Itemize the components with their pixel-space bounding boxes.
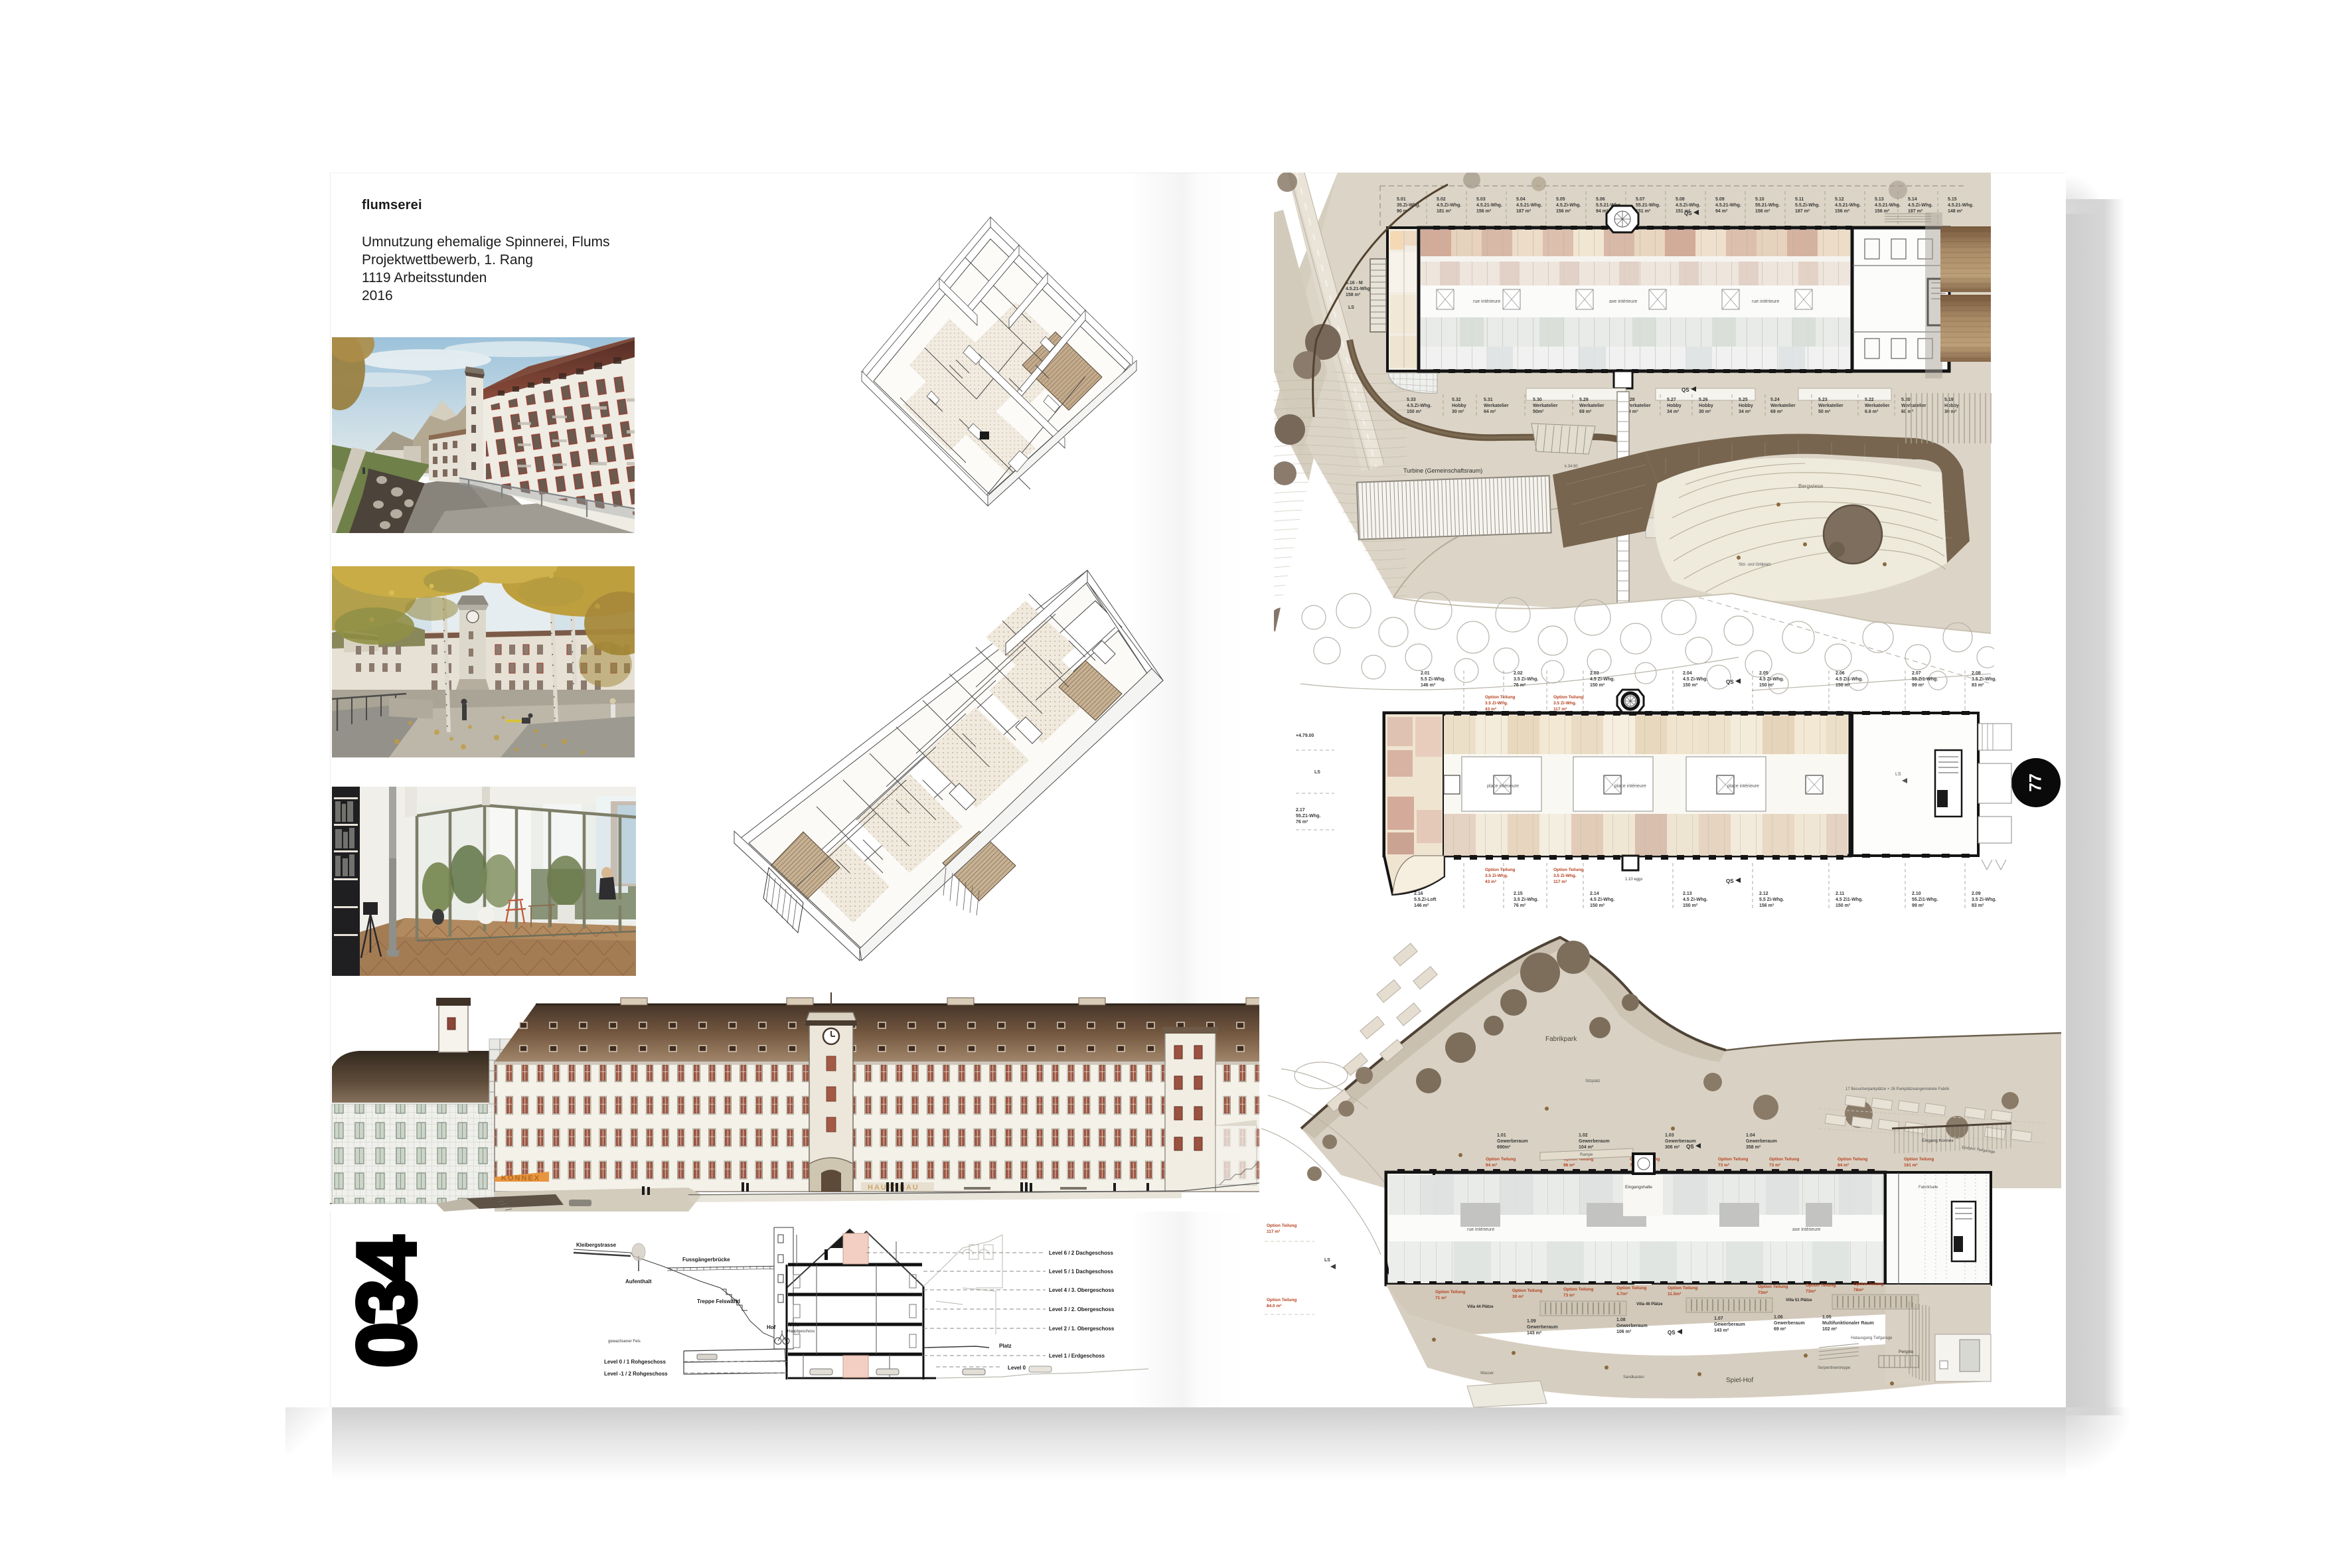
svg-text:Treppe Felswand: Treppe Felswand bbox=[697, 1298, 740, 1304]
svg-text:358 m²: 358 m² bbox=[1746, 1145, 1761, 1150]
svg-text:1.06: 1.06 bbox=[1774, 1315, 1783, 1320]
svg-text:Fabrikhalle: Fabrikhalle bbox=[1919, 1186, 1938, 1190]
svg-text:rue intérieure: rue intérieure bbox=[1752, 299, 1779, 304]
svg-text:1.05: 1.05 bbox=[1822, 1315, 1832, 1320]
svg-text:Option Teilung: Option Teilung bbox=[1769, 1157, 1799, 1162]
svg-text:71 m²: 71 m² bbox=[1435, 1296, 1447, 1300]
svg-text:5.25: 5.25 bbox=[1739, 398, 1748, 402]
svg-text:Option Teilung: Option Teilung bbox=[1485, 868, 1515, 872]
svg-text:78m²: 78m² bbox=[1853, 1288, 1864, 1293]
svg-text:5.16 - M: 5.16 - M bbox=[1346, 281, 1363, 285]
svg-text:69 m²: 69 m² bbox=[1579, 410, 1592, 414]
svg-text:73 m²: 73 m² bbox=[1563, 1293, 1575, 1298]
svg-text:Turbine (Gemeinschaftsraum): Turbine (Gemeinschaftsraum) bbox=[1403, 467, 1482, 474]
svg-text:156 m²: 156 m² bbox=[1835, 209, 1850, 214]
svg-text:6.6 m²: 6.6 m² bbox=[1865, 410, 1879, 414]
svg-text:Villa 46 Plätze: Villa 46 Plätze bbox=[1636, 1302, 1663, 1306]
svg-text:Hof: Hof bbox=[767, 1324, 776, 1330]
svg-text:4.5 Zi-Whg.: 4.5 Zi-Whg. bbox=[1683, 677, 1707, 682]
svg-text:5.5.Zi-Whg.: 5.5.Zi-Whg. bbox=[1795, 203, 1820, 208]
svg-text:99 m²: 99 m² bbox=[1912, 683, 1924, 688]
svg-text:156 m²: 156 m² bbox=[1759, 903, 1774, 908]
svg-text:Werkatelier: Werkatelier bbox=[1901, 404, 1926, 408]
svg-text:Sitz- und Grillplatz: Sitz- und Grillplatz bbox=[1739, 563, 1771, 567]
svg-text:QS: QS bbox=[1668, 1330, 1676, 1336]
svg-text:Level 5 / 1 Dachgeschoss: Level 5 / 1 Dachgeschoss bbox=[1049, 1269, 1113, 1275]
svg-text:2.08: 2.08 bbox=[1972, 671, 1981, 676]
svg-text:84 m²: 84 m² bbox=[1838, 1163, 1849, 1168]
svg-text:43 m²: 43 m² bbox=[1485, 707, 1497, 712]
svg-text:Gewerberaum: Gewerberaum bbox=[1616, 1324, 1648, 1328]
svg-text:5.11: 5.11 bbox=[1795, 197, 1804, 202]
svg-text:Gewerberaum: Gewerberaum bbox=[1527, 1325, 1558, 1330]
svg-text:k.34.90: k.34.90 bbox=[1565, 465, 1578, 469]
svg-text:150 m²: 150 m² bbox=[1759, 683, 1774, 688]
svg-text:143 m²: 143 m² bbox=[1714, 1328, 1729, 1333]
svg-text:Option Teilung: Option Teilung bbox=[1904, 1157, 1934, 1162]
svg-text:2.15: 2.15 bbox=[1514, 892, 1523, 896]
svg-text:5.5 Zi-Whg.: 5.5 Zi-Whg. bbox=[1759, 898, 1784, 902]
svg-text:5.12: 5.12 bbox=[1835, 197, 1844, 202]
svg-text:5.26: 5.26 bbox=[1699, 398, 1708, 402]
svg-text:150 m²: 150 m² bbox=[1590, 903, 1605, 908]
svg-text:QS: QS bbox=[1726, 878, 1734, 884]
svg-text:30 m²: 30 m² bbox=[1944, 410, 1957, 414]
svg-text:187 m²: 187 m² bbox=[1516, 209, 1531, 214]
svg-text:4.5 Zi1-Whg.: 4.5 Zi1-Whg. bbox=[1836, 677, 1863, 682]
svg-text:4.5.21-Whg.: 4.5.21-Whg. bbox=[1476, 203, 1502, 208]
svg-text:5.07: 5.07 bbox=[1636, 197, 1645, 202]
svg-text:3.5 Zi-Whg.: 3.5 Zi-Whg. bbox=[1514, 898, 1538, 902]
svg-text:17 Besucherparkplätze + 26 Par: 17 Besucherparkplätze + 26 Parkplätzeang… bbox=[1845, 1087, 1950, 1091]
svg-text:5.13: 5.13 bbox=[1875, 197, 1884, 202]
svg-text:Serpentinentreppe: Serpentinentreppe bbox=[1818, 1366, 1851, 1370]
svg-text:11.5m²: 11.5m² bbox=[1668, 1292, 1682, 1296]
svg-text:1.08: 1.08 bbox=[1616, 1318, 1626, 1322]
svg-text:Werkatelier: Werkatelier bbox=[1579, 404, 1605, 408]
svg-text:187 m²: 187 m² bbox=[1795, 209, 1810, 214]
svg-text:3.5 Zi-Whg.: 3.5 Zi-Whg. bbox=[1972, 677, 1996, 682]
svg-text:LS: LS bbox=[1324, 1258, 1330, 1263]
svg-text:Option Teilung: Option Teilung bbox=[1553, 695, 1583, 700]
svg-text:34 m²: 34 m² bbox=[1667, 410, 1680, 414]
svg-text:5.27: 5.27 bbox=[1667, 398, 1676, 402]
svg-text:150 m²: 150 m² bbox=[1407, 410, 1422, 414]
svg-text:2.12: 2.12 bbox=[1759, 892, 1768, 896]
svg-text:Option Teilung: Option Teilung bbox=[1267, 1298, 1296, 1302]
svg-text:axe intérieure: axe intérieure bbox=[1792, 1227, 1821, 1232]
svg-text:2.01: 2.01 bbox=[1421, 671, 1430, 676]
svg-text:5.06: 5.06 bbox=[1596, 197, 1605, 202]
svg-text:1.02: 1.02 bbox=[1579, 1133, 1588, 1138]
svg-text:place intérieure: place intérieure bbox=[1727, 784, 1759, 789]
svg-text:69 m²: 69 m² bbox=[1774, 1327, 1786, 1332]
svg-text:30 m²: 30 m² bbox=[1452, 410, 1464, 414]
svg-text:4.5 Zi-Whg.: 4.5 Zi-Whg. bbox=[1590, 898, 1614, 902]
svg-text:5.02: 5.02 bbox=[1437, 197, 1446, 202]
svg-text:5.32: 5.32 bbox=[1452, 398, 1461, 402]
svg-text:43 m²: 43 m² bbox=[1485, 880, 1497, 884]
svg-text:5.5.Zi-Loft: 5.5.Zi-Loft bbox=[1414, 898, 1437, 902]
svg-text:3.5 Zi-Whg.: 3.5 Zi-Whg. bbox=[1485, 874, 1508, 878]
svg-text:4.5 Zi-Whg.: 4.5 Zi-Whg. bbox=[1759, 677, 1784, 682]
svg-text:117 m²: 117 m² bbox=[1553, 880, 1567, 884]
svg-text:30 m²: 30 m² bbox=[1699, 410, 1711, 414]
svg-text:55.21-Whg.: 55.21-Whg. bbox=[1755, 203, 1780, 208]
svg-text:Rampe: Rampe bbox=[1580, 1153, 1593, 1157]
svg-text:Aufenthalt: Aufenthalt bbox=[625, 1279, 652, 1285]
svg-text:94 m²: 94 m² bbox=[1715, 209, 1728, 214]
svg-text:5.09: 5.09 bbox=[1715, 197, 1725, 202]
svg-text:84.0 m²: 84.0 m² bbox=[1267, 1304, 1282, 1308]
svg-text:156 m²: 156 m² bbox=[1875, 209, 1890, 214]
svg-text:5.05: 5.05 bbox=[1556, 197, 1565, 202]
svg-text:Option Teilung: Option Teilung bbox=[1563, 1287, 1593, 1292]
svg-text:2.13: 2.13 bbox=[1683, 892, 1692, 896]
svg-text:Option Teilung: Option Teilung bbox=[1267, 1223, 1296, 1228]
svg-text:83 m²: 83 m² bbox=[1972, 903, 1984, 908]
svg-text:Eingangshalle: Eingangshalle bbox=[1625, 1185, 1652, 1190]
svg-text:2.11: 2.11 bbox=[1836, 892, 1844, 896]
svg-text:69 m²: 69 m² bbox=[1770, 410, 1783, 414]
svg-text:690m²: 690m² bbox=[1497, 1145, 1511, 1150]
svg-text:150 m²: 150 m² bbox=[1683, 903, 1698, 908]
svg-text:55.Zi1-Whg.: 55.Zi1-Whg. bbox=[1912, 677, 1938, 682]
svg-text:60 m²: 60 m² bbox=[1901, 410, 1914, 414]
svg-text:4.5.Zi-Whg.: 4.5.Zi-Whg. bbox=[1437, 203, 1461, 208]
svg-text:Sandkasten: Sandkasten bbox=[1623, 1375, 1644, 1379]
svg-text:5.33: 5.33 bbox=[1407, 398, 1416, 402]
svg-text:4.5.21-Whg.: 4.5.21-Whg. bbox=[1875, 203, 1901, 208]
svg-text:Level 2 / 1. Obergeschoss: Level 2 / 1. Obergeschoss bbox=[1049, 1326, 1115, 1332]
svg-text:Gewerberaum: Gewerberaum bbox=[1497, 1139, 1528, 1144]
svg-text:104 m²: 104 m² bbox=[1579, 1145, 1594, 1150]
svg-text:102 m²: 102 m² bbox=[1822, 1327, 1838, 1332]
svg-text:1.03: 1.03 bbox=[1665, 1133, 1674, 1138]
svg-text:Werkatelier: Werkatelier bbox=[1533, 404, 1558, 408]
svg-text:4.5.Zi-Whg.: 4.5.Zi-Whg. bbox=[1908, 203, 1932, 208]
svg-text:83 m²: 83 m² bbox=[1972, 683, 1984, 688]
svg-text:73m²: 73m² bbox=[1758, 1291, 1768, 1295]
svg-text:Kleibergstrasse: Kleibergstrasse bbox=[576, 1242, 617, 1248]
svg-text:+4.79.00: +4.79.00 bbox=[1296, 734, 1314, 738]
svg-text:76 m²: 76 m² bbox=[1296, 820, 1308, 824]
svg-text:34 m²: 34 m² bbox=[1739, 410, 1751, 414]
svg-text:64 m²: 64 m² bbox=[1484, 410, 1496, 414]
svg-text:150 m²: 150 m² bbox=[1683, 683, 1698, 688]
svg-text:150 m²: 150 m² bbox=[1836, 903, 1851, 908]
svg-text:3.5 Zi-Whg.: 3.5 Zi-Whg. bbox=[1972, 898, 1996, 902]
svg-text:Spiel-Hof: Spiel-Hof bbox=[1726, 1377, 1753, 1384]
svg-text:4.5 Zi1-Whg.: 4.5 Zi1-Whg. bbox=[1836, 898, 1863, 902]
svg-text:5.5 Zi-Whg.: 5.5 Zi-Whg. bbox=[1421, 677, 1445, 682]
svg-text:Gewerberaum: Gewerberaum bbox=[1665, 1139, 1696, 1144]
svg-text:3.5 Zi-Whg.: 3.5 Zi-Whg. bbox=[1485, 701, 1508, 706]
svg-text:3.5 Zi-Whg.: 3.5 Zi-Whg. bbox=[1553, 874, 1577, 878]
svg-text:Option Teilung: Option Teilung bbox=[1616, 1286, 1646, 1291]
svg-text:73m²: 73m² bbox=[1806, 1289, 1816, 1294]
svg-text:99 m²: 99 m² bbox=[1912, 903, 1924, 908]
svg-text:2.04: 2.04 bbox=[1683, 671, 1692, 676]
svg-text:76 m²: 76 m² bbox=[1514, 903, 1526, 908]
svg-text:3.5 Zi-Whg.: 3.5 Zi-Whg. bbox=[1514, 677, 1538, 682]
svg-text:rue intérieure: rue intérieure bbox=[1467, 1227, 1494, 1232]
svg-text:5.30: 5.30 bbox=[1533, 398, 1542, 402]
svg-text:306 m²: 306 m² bbox=[1665, 1145, 1680, 1150]
svg-text:30 m²: 30 m² bbox=[1512, 1294, 1524, 1299]
svg-text:Fabrikpark: Fabrikpark bbox=[1545, 1036, 1577, 1043]
svg-text:Option Teilung: Option Teilung bbox=[1512, 1289, 1542, 1293]
svg-text:3.5 Zi-Whg.: 3.5 Zi-Whg. bbox=[1553, 701, 1577, 706]
svg-text:96 m²: 96 m² bbox=[1563, 1163, 1575, 1168]
svg-text:Hauptgeschoss: Hauptgeschoss bbox=[787, 1330, 815, 1334]
svg-text:Werkatelier: Werkatelier bbox=[1818, 404, 1843, 408]
svg-text:2.03: 2.03 bbox=[1590, 671, 1599, 676]
svg-text:181 m²: 181 m² bbox=[1437, 209, 1452, 214]
svg-text:Hatausgang Tiefgarage: Hatausgang Tiefgarage bbox=[1851, 1336, 1893, 1340]
svg-text:Option Teilung: Option Teilung bbox=[1553, 868, 1583, 872]
svg-text:place intérieure: place intérieure bbox=[1487, 784, 1519, 789]
svg-text:117 m²: 117 m² bbox=[1267, 1229, 1281, 1234]
svg-text:QS: QS bbox=[1682, 387, 1689, 393]
svg-text:Platz: Platz bbox=[999, 1343, 1012, 1349]
svg-text:Gewerberaum: Gewerberaum bbox=[1579, 1139, 1610, 1144]
svg-text:148 m²: 148 m² bbox=[1948, 209, 1963, 214]
svg-text:Bergwiese: Bergwiese bbox=[1798, 483, 1824, 489]
svg-text:axe intérieure: axe intérieure bbox=[1609, 299, 1638, 304]
svg-text:LS: LS bbox=[1895, 772, 1901, 777]
svg-text:Option Teilung: Option Teilung bbox=[1718, 1157, 1748, 1162]
svg-text:143 m²: 143 m² bbox=[1527, 1331, 1542, 1336]
svg-text:Werkatelier: Werkatelier bbox=[1770, 404, 1796, 408]
svg-text:Level 4 / 3. Obergeschoss: Level 4 / 3. Obergeschoss bbox=[1049, 1287, 1115, 1293]
svg-text:Hobby: Hobby bbox=[1944, 404, 1959, 408]
svg-text:50 m²: 50 m² bbox=[1818, 410, 1831, 414]
svg-text:Option Teilung: Option Teilung bbox=[1668, 1286, 1697, 1291]
svg-text:5.24: 5.24 bbox=[1770, 398, 1780, 402]
svg-text:QS: QS bbox=[1726, 679, 1734, 685]
svg-text:Option Teilung: Option Teilung bbox=[1486, 1157, 1516, 1162]
svg-text:Hobby: Hobby bbox=[1699, 404, 1713, 408]
svg-text:QS: QS bbox=[1684, 210, 1692, 216]
svg-text:2.14: 2.14 bbox=[1590, 892, 1599, 896]
svg-text:LS: LS bbox=[1314, 770, 1320, 775]
svg-text:QS: QS bbox=[1686, 1144, 1694, 1150]
svg-text:Hobby: Hobby bbox=[1452, 404, 1466, 408]
svg-text:1.01: 1.01 bbox=[1497, 1133, 1506, 1138]
svg-text:4.7m²: 4.7m² bbox=[1616, 1292, 1628, 1296]
svg-text:2.02: 2.02 bbox=[1514, 671, 1523, 676]
svg-text:5.15: 5.15 bbox=[1948, 197, 1957, 202]
svg-text:Hobby: Hobby bbox=[1667, 404, 1682, 408]
svg-text:1.09: 1.09 bbox=[1527, 1319, 1536, 1324]
svg-text:Gewerberaum: Gewerberaum bbox=[1774, 1321, 1805, 1326]
svg-text:Level 0: Level 0 bbox=[1008, 1365, 1026, 1371]
svg-text:161 m²: 161 m² bbox=[1904, 1163, 1918, 1168]
svg-text:Hobby: Hobby bbox=[1739, 404, 1753, 408]
svg-text:73 m²: 73 m² bbox=[1769, 1163, 1781, 1168]
svg-text:150 m²: 150 m² bbox=[1836, 683, 1851, 688]
svg-text:5.01: 5.01 bbox=[1397, 197, 1406, 202]
svg-text:2.07: 2.07 bbox=[1912, 671, 1921, 676]
svg-text:5.29: 5.29 bbox=[1579, 398, 1589, 402]
svg-text:Level -1 / 2 Rohgeschoss: Level -1 / 2 Rohgeschoss bbox=[604, 1371, 668, 1377]
svg-text:156 m²: 156 m² bbox=[1476, 209, 1492, 214]
svg-text:gewachsener Fels: gewachsener Fels bbox=[608, 1340, 641, 1344]
svg-text:2.05: 2.05 bbox=[1759, 671, 1768, 676]
svg-text:5.04: 5.04 bbox=[1516, 197, 1526, 202]
svg-text:4.5 Zi-Whg.: 4.5 Zi-Whg. bbox=[1590, 677, 1614, 682]
svg-text:Level 3 / 2. Obergeschoss: Level 3 / 2. Obergeschoss bbox=[1049, 1306, 1115, 1312]
svg-text:55.Zi1-Whg.: 55.Zi1-Whg. bbox=[1912, 898, 1938, 902]
svg-text:5.31: 5.31 bbox=[1484, 398, 1493, 402]
svg-text:158 m²: 158 m² bbox=[1346, 293, 1361, 297]
svg-text:Villa 44 Plätze: Villa 44 Plätze bbox=[1467, 1305, 1494, 1309]
svg-text:150 m²: 150 m² bbox=[1590, 683, 1605, 688]
svg-text:55.21-Whg.: 55.21-Whg. bbox=[1636, 203, 1660, 208]
svg-text:156 m²: 156 m² bbox=[1755, 209, 1770, 214]
svg-text:Level 0 / 1 Rohgeschoss: Level 0 / 1 Rohgeschoss bbox=[604, 1359, 666, 1365]
svg-text:76 m²: 76 m² bbox=[1514, 683, 1526, 688]
svg-text:Werkatelier: Werkatelier bbox=[1484, 404, 1509, 408]
svg-text:4.5.Zi-Whg.: 4.5.Zi-Whg. bbox=[1556, 203, 1581, 208]
svg-text:Pergola: Pergola bbox=[1899, 1350, 1914, 1354]
svg-text:Option Teilung: Option Teilung bbox=[1853, 1282, 1883, 1287]
svg-text:55.Z1-Whg.: 55.Z1-Whg. bbox=[1296, 814, 1320, 819]
svg-text:4.5 Zi-Whg.: 4.5 Zi-Whg. bbox=[1683, 898, 1707, 902]
svg-text:94 m²: 94 m² bbox=[1486, 1163, 1498, 1168]
svg-text:Level 6 / 2 Dachgeschoss: Level 6 / 2 Dachgeschoss bbox=[1049, 1250, 1113, 1256]
svg-text:Werkatelier: Werkatelier bbox=[1865, 404, 1890, 408]
svg-text:2.06: 2.06 bbox=[1836, 671, 1845, 676]
svg-text:LS: LS bbox=[1348, 305, 1354, 310]
svg-text:50m²: 50m² bbox=[1533, 410, 1544, 414]
svg-text:Option Teilung: Option Teilung bbox=[1838, 1157, 1867, 1162]
svg-text:1.07: 1.07 bbox=[1714, 1316, 1723, 1321]
svg-text:Gewerberaum: Gewerberaum bbox=[1714, 1322, 1745, 1327]
svg-text:4.5.21-Whg.: 4.5.21-Whg. bbox=[1948, 203, 1974, 208]
svg-text:rue intérieure: rue intérieure bbox=[1473, 299, 1500, 304]
svg-text:106 m²: 106 m² bbox=[1616, 1330, 1632, 1334]
svg-text:4.5.21-Whg.: 4.5.21-Whg. bbox=[1516, 203, 1542, 208]
svg-text:1.10 eggs: 1.10 eggs bbox=[1625, 878, 1642, 882]
svg-text:5.14: 5.14 bbox=[1908, 197, 1917, 202]
svg-text:2.09: 2.09 bbox=[1972, 892, 1981, 896]
svg-text:2.16: 2.16 bbox=[1414, 892, 1423, 896]
svg-text:4.5.Zi-Whg.: 4.5.Zi-Whg. bbox=[1407, 404, 1431, 408]
svg-text:4.5.21-Whg.: 4.5.21-Whg. bbox=[1835, 203, 1861, 208]
svg-text:187 m²: 187 m² bbox=[1908, 209, 1923, 214]
svg-text:Level 1 / Erdgeschoss: Level 1 / Erdgeschoss bbox=[1049, 1353, 1105, 1359]
svg-text:Option Teilung: Option Teilung bbox=[1485, 695, 1515, 700]
svg-text:Option Teilung: Option Teilung bbox=[1806, 1283, 1836, 1288]
svg-text:4.5.Zi-Whg.: 4.5.Zi-Whg. bbox=[1676, 203, 1700, 208]
svg-text:Sitzplatz: Sitzplatz bbox=[1585, 1079, 1601, 1083]
svg-text:5.08: 5.08 bbox=[1676, 197, 1685, 202]
svg-text:4.5.21-Whg.: 4.5.21-Whg. bbox=[1715, 203, 1741, 208]
svg-text:Option Teilung: Option Teilung bbox=[1758, 1285, 1788, 1289]
svg-text:place intérieure: place intérieure bbox=[1614, 784, 1646, 789]
svg-text:Eingang Konnex: Eingang Konnex bbox=[1922, 1138, 1954, 1143]
svg-text:5.19: 5.19 bbox=[1944, 398, 1954, 402]
svg-text:Multifunktionaler Raum: Multifunktionaler Raum bbox=[1822, 1321, 1874, 1326]
svg-text:2.17: 2.17 bbox=[1296, 808, 1305, 813]
svg-text:117 m²: 117 m² bbox=[1553, 707, 1567, 712]
svg-text:146 m²: 146 m² bbox=[1421, 683, 1436, 688]
svg-text:1.04: 1.04 bbox=[1746, 1133, 1755, 1138]
svg-text:73 m²: 73 m² bbox=[1718, 1163, 1730, 1168]
svg-text:5.10: 5.10 bbox=[1755, 197, 1764, 202]
svg-text:Villa 51 Plätze: Villa 51 Plätze bbox=[1786, 1298, 1812, 1302]
svg-text:4.5.21-Whg.: 4.5.21-Whg. bbox=[1346, 287, 1372, 291]
svg-text:5.03: 5.03 bbox=[1476, 197, 1486, 202]
svg-text:Fussgängerbrücke: Fussgängerbrücke bbox=[682, 1257, 730, 1263]
svg-text:Wasser: Wasser bbox=[1480, 1372, 1494, 1375]
svg-text:Gewerberaum: Gewerberaum bbox=[1746, 1139, 1777, 1144]
svg-text:146 m²: 146 m² bbox=[1414, 903, 1429, 908]
svg-text:Velo: Velo bbox=[789, 1322, 800, 1328]
svg-text:156 m²: 156 m² bbox=[1556, 209, 1571, 214]
svg-text:2.10: 2.10 bbox=[1912, 892, 1921, 896]
svg-text:5.23: 5.23 bbox=[1818, 398, 1828, 402]
svg-text:5.22: 5.22 bbox=[1865, 398, 1874, 402]
svg-text:Option Teilung: Option Teilung bbox=[1435, 1290, 1465, 1294]
svg-text:KONNEX: KONNEX bbox=[501, 1174, 540, 1182]
